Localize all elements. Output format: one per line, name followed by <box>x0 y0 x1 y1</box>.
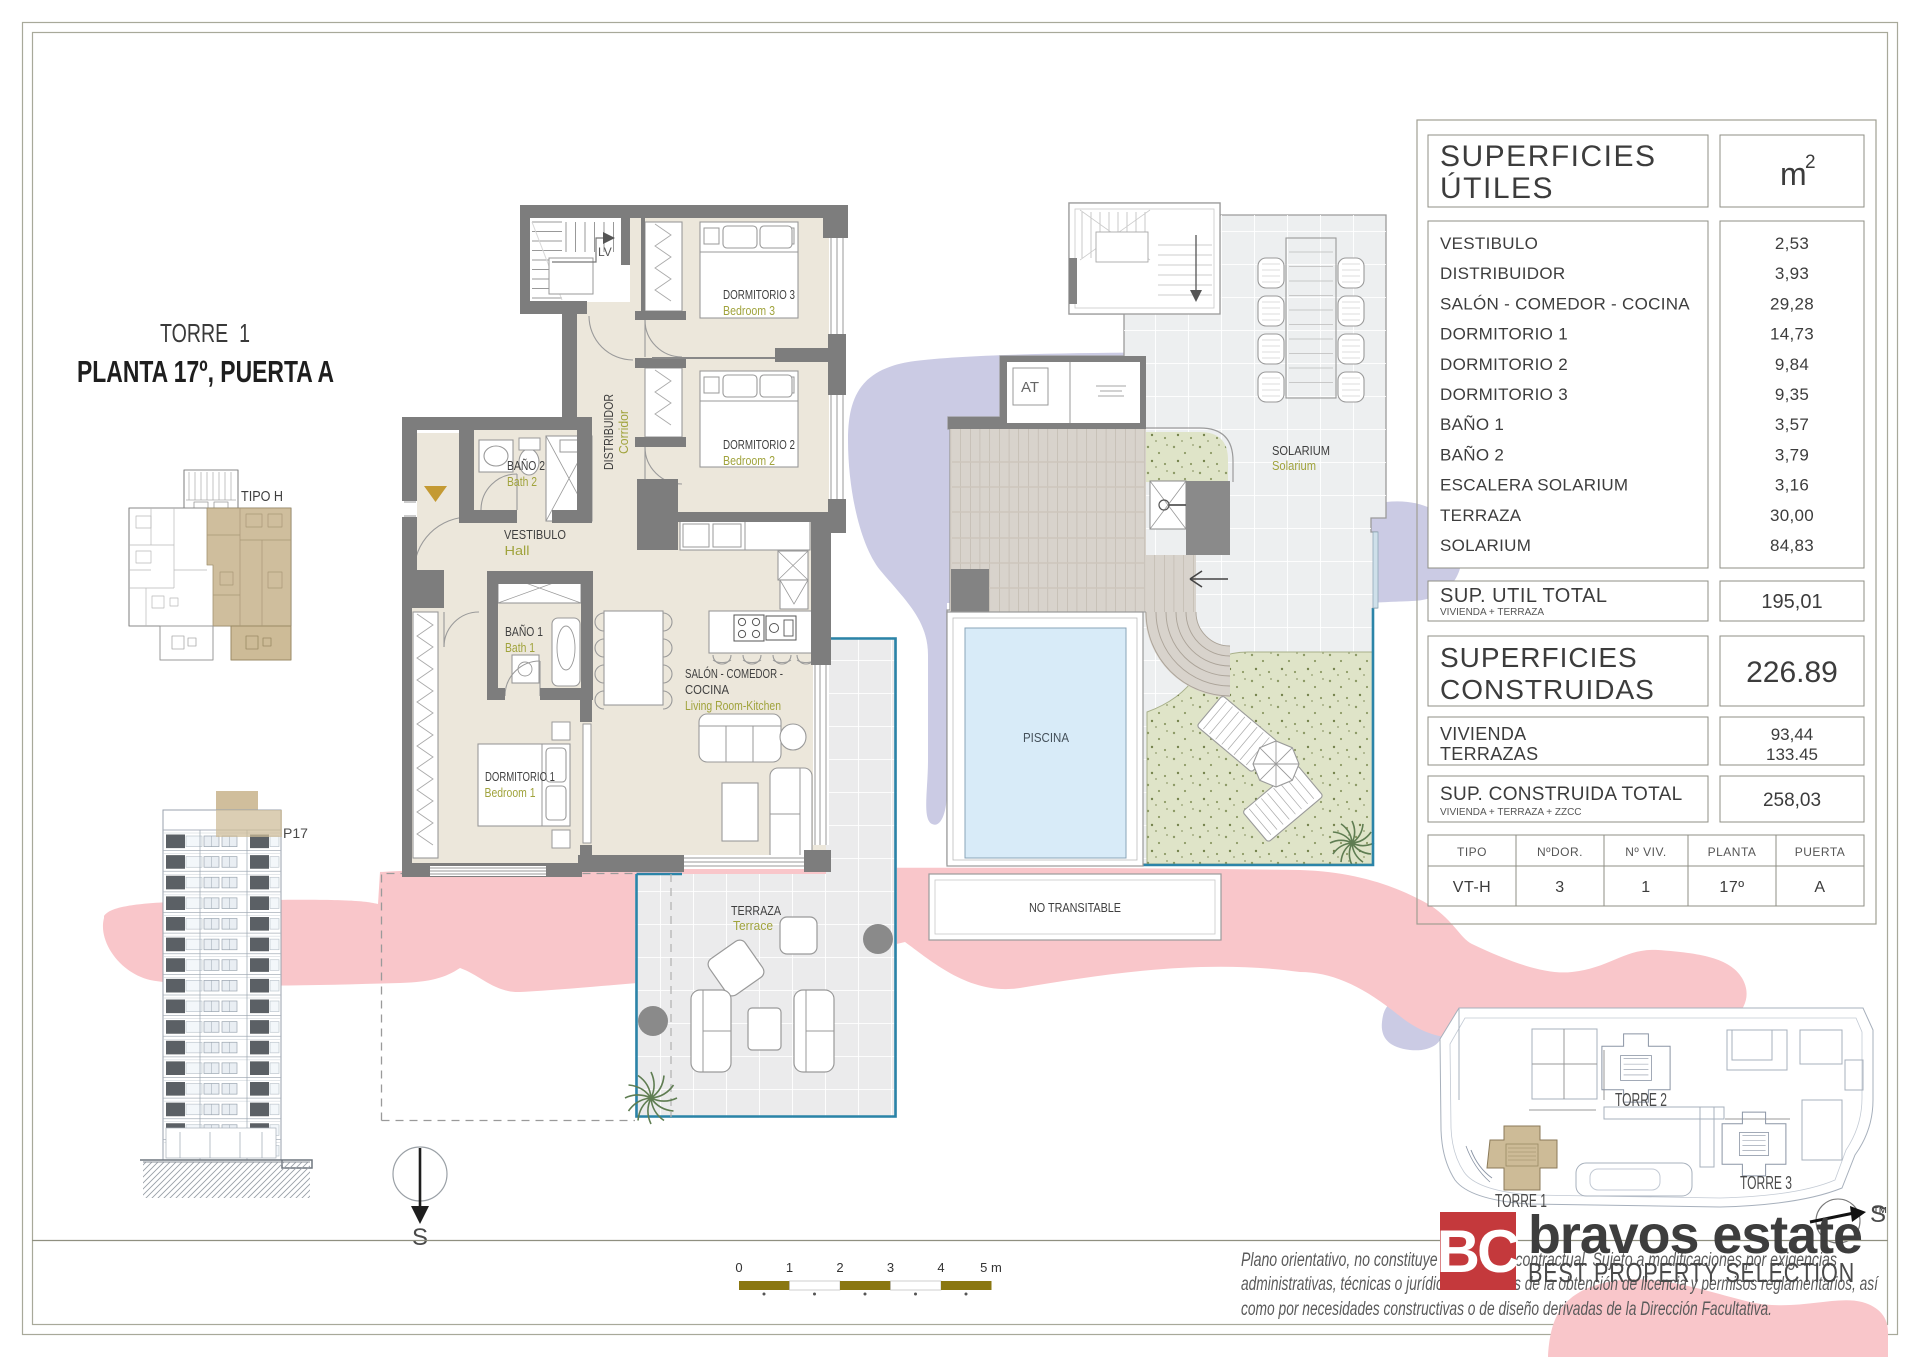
svg-text:COCINA: COCINA <box>685 682 729 697</box>
svg-text:P17: P17 <box>283 825 308 841</box>
svg-text:BEST PROPERTY SELECTION: BEST PROPERTY SELECTION <box>1528 1257 1855 1288</box>
svg-text:Bath 2: Bath 2 <box>507 474 537 489</box>
svg-text:30,00: 30,00 <box>1770 506 1814 525</box>
svg-text:SALÓN - COMEDOR -: SALÓN - COMEDOR - <box>685 666 783 681</box>
svg-text:258,03: 258,03 <box>1763 790 1821 811</box>
svg-text:1: 1 <box>786 1260 793 1275</box>
svg-text:4: 4 <box>937 1260 944 1275</box>
svg-text:m: m <box>1780 156 1807 192</box>
svg-text:como por necesidades construct: como por necesidades constructivas o de … <box>1241 1299 1772 1320</box>
svg-text:3,57: 3,57 <box>1775 415 1809 434</box>
svg-text:BAÑO 2: BAÑO 2 <box>1440 445 1504 464</box>
svg-text:DORMITORIO 1: DORMITORIO 1 <box>1440 325 1568 344</box>
svg-text:PUERTA: PUERTA <box>1795 845 1846 859</box>
svg-text:29,28: 29,28 <box>1770 294 1814 313</box>
svg-text:DORMITORIO 3: DORMITORIO 3 <box>723 287 795 302</box>
svg-text:NO TRANSITABLE: NO TRANSITABLE <box>1029 900 1121 915</box>
svg-text:14,73: 14,73 <box>1770 325 1814 344</box>
svg-text:AT: AT <box>1021 379 1039 396</box>
svg-text:195,01: 195,01 <box>1761 591 1822 613</box>
svg-text:Corridor: Corridor <box>617 410 631 454</box>
svg-text:0: 0 <box>735 1260 742 1275</box>
svg-text:SUP. UTIL TOTAL: SUP. UTIL TOTAL <box>1440 585 1608 607</box>
svg-text:ÚTILES: ÚTILES <box>1440 172 1554 205</box>
svg-text:3: 3 <box>1555 879 1564 896</box>
svg-text:Bedroom 3: Bedroom 3 <box>723 303 775 318</box>
svg-text:Bedroom 1: Bedroom 1 <box>485 785 536 800</box>
svg-text:A: A <box>1814 879 1825 896</box>
svg-text:133.45: 133.45 <box>1766 745 1818 764</box>
svg-text:SUPERFICIES: SUPERFICIES <box>1440 140 1657 173</box>
svg-text:3: 3 <box>887 1260 894 1275</box>
svg-text:84,83: 84,83 <box>1770 536 1814 555</box>
svg-text:Bath 1: Bath 1 <box>505 640 535 655</box>
svg-text:SALÓN - COMEDOR - COCINA: SALÓN - COMEDOR - COCINA <box>1440 294 1690 313</box>
svg-text:bravos estate: bravos estate <box>1528 1205 1862 1265</box>
svg-text:PLANTA: PLANTA <box>1708 845 1757 859</box>
svg-text:9,84: 9,84 <box>1775 355 1809 374</box>
svg-text:BAÑO 2: BAÑO 2 <box>507 458 545 473</box>
svg-text:PISCINA: PISCINA <box>1023 730 1069 745</box>
svg-text:TIPO: TIPO <box>1457 845 1487 859</box>
svg-text:5 m: 5 m <box>980 1260 1002 1275</box>
svg-text:2: 2 <box>836 1260 843 1275</box>
svg-text:LV: LV <box>598 245 612 259</box>
svg-text:DISTRIBUIDOR: DISTRIBUIDOR <box>602 394 616 470</box>
svg-text:DORMITORIO 2: DORMITORIO 2 <box>723 437 795 452</box>
svg-text:DORMITORIO 3: DORMITORIO 3 <box>1440 385 1568 404</box>
svg-text:SUPERFICIES: SUPERFICIES <box>1440 642 1638 673</box>
svg-text:Bedroom 2: Bedroom 2 <box>723 453 775 468</box>
svg-text:NºDOR.: NºDOR. <box>1537 845 1583 859</box>
svg-text:3,79: 3,79 <box>1775 445 1809 464</box>
svg-text:VIVIENDA: VIVIENDA <box>1440 724 1526 744</box>
svg-text:Terrace: Terrace <box>733 918 773 933</box>
svg-text:17º: 17º <box>1719 879 1744 896</box>
svg-text:SUP. CONSTRUIDA TOTAL: SUP. CONSTRUIDA TOTAL <box>1440 784 1682 805</box>
svg-text:BAÑO 1: BAÑO 1 <box>1440 415 1504 434</box>
svg-text:DORMITORIO 2: DORMITORIO 2 <box>1440 355 1568 374</box>
svg-text:3,93: 3,93 <box>1775 264 1809 283</box>
svg-text:TERRAZA: TERRAZA <box>1440 506 1522 525</box>
svg-text:DISTRIBUIDOR: DISTRIBUIDOR <box>1440 264 1565 283</box>
svg-text:BAÑO 1: BAÑO 1 <box>505 624 543 639</box>
svg-text:VESTIBULO: VESTIBULO <box>1440 234 1538 253</box>
svg-text:TORRE 1: TORRE 1 <box>160 318 250 348</box>
svg-text:TERRAZAS: TERRAZAS <box>1440 744 1538 764</box>
svg-text:SOLARIUM: SOLARIUM <box>1440 536 1531 555</box>
svg-text:CONSTRUIDAS: CONSTRUIDAS <box>1440 674 1655 705</box>
svg-text:TORRE 3: TORRE 3 <box>1740 1173 1792 1193</box>
svg-text:PLANTA 17º, PUERTA A: PLANTA 17º, PUERTA A <box>77 354 334 389</box>
svg-text:226.89: 226.89 <box>1746 656 1838 689</box>
svg-text:TIPO H: TIPO H <box>241 488 283 505</box>
svg-text:Solarium: Solarium <box>1272 458 1316 473</box>
svg-text:ESCALERA SOLARIUM: ESCALERA SOLARIUM <box>1440 476 1628 495</box>
svg-text:Hall: Hall <box>505 543 530 558</box>
svg-text:1: 1 <box>1641 879 1650 896</box>
svg-text:S: S <box>412 1224 428 1251</box>
svg-text:3,16: 3,16 <box>1775 476 1809 495</box>
svg-text:2: 2 <box>1805 152 1816 173</box>
svg-text:Nº VIV.: Nº VIV. <box>1625 845 1666 859</box>
svg-text:VIVIENDA + TERRAZA: VIVIENDA + TERRAZA <box>1440 607 1544 618</box>
svg-text:TERRAZA: TERRAZA <box>731 903 781 918</box>
svg-text:DORMITORIO 1: DORMITORIO 1 <box>485 769 555 784</box>
svg-text:9,35: 9,35 <box>1775 385 1809 404</box>
svg-text:™: ™ <box>1872 1205 1888 1222</box>
svg-text:VT-H: VT-H <box>1453 879 1491 896</box>
svg-text:SOLARIUM: SOLARIUM <box>1272 443 1330 458</box>
svg-text:VIVIENDA + TERRAZA + ZZCC: VIVIENDA + TERRAZA + ZZCC <box>1440 807 1582 818</box>
svg-text:Living Room-Kitchen: Living Room-Kitchen <box>685 698 781 713</box>
svg-text:BC: BC <box>1437 1218 1519 1285</box>
svg-text:TORRE 2: TORRE 2 <box>1615 1090 1667 1110</box>
svg-text:2,53: 2,53 <box>1775 234 1809 253</box>
svg-text:93,44: 93,44 <box>1771 725 1814 744</box>
svg-text:VESTIBULO: VESTIBULO <box>504 527 566 542</box>
